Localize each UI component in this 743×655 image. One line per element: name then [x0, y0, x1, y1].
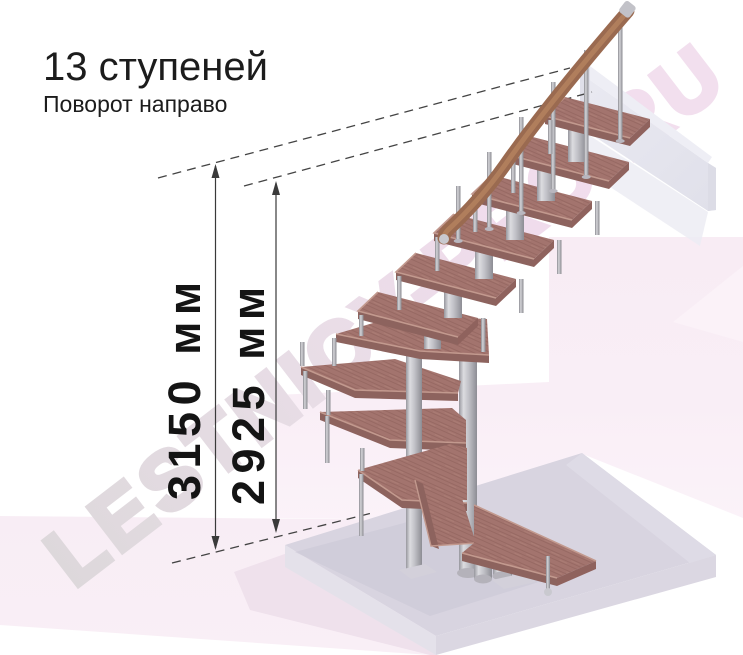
svg-text:13 ступеней: 13 ступеней — [43, 45, 268, 89]
svg-text:Поворот направо: Поворот направо — [43, 91, 227, 117]
svg-text:3150 мм: 3150 мм — [159, 275, 210, 500]
svg-text:2925 мм: 2925 мм — [223, 280, 274, 505]
